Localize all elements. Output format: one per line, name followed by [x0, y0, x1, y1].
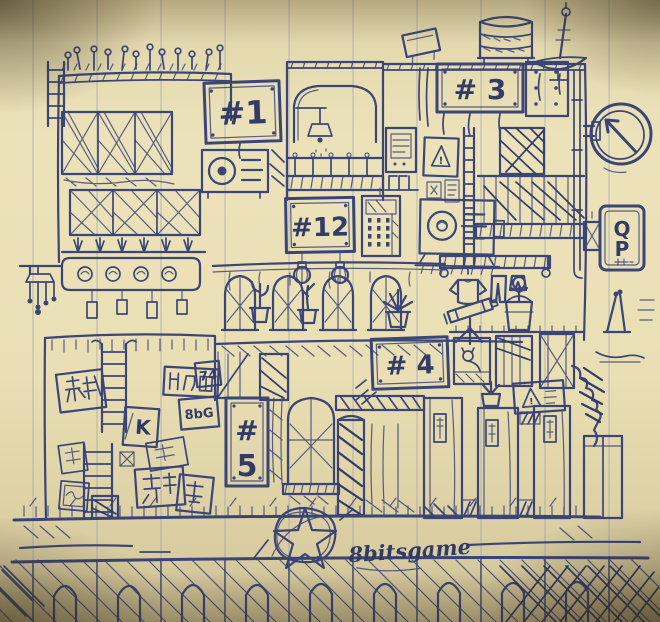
scalloped-edge — [572, 366, 604, 446]
unit-5-hash: # — [235, 414, 258, 447]
poster-k: K — [123, 407, 160, 447]
ac-unit-left — [202, 150, 268, 198]
hanging-lamp — [296, 108, 332, 156]
lattice-window-band-lower — [70, 190, 200, 235]
potted-plants-row — [215, 282, 522, 356]
satellite-dish — [534, 3, 586, 80]
roof-garden — [62, 44, 223, 70]
arrow-traffic-sign — [584, 104, 651, 173]
lattice-window-band-upper — [62, 112, 174, 186]
sign-unit-12: #12 — [286, 197, 355, 252]
unit-4-label: # 4 — [385, 350, 435, 382]
arcade-ledge — [213, 262, 445, 290]
warning-sign-upper: ! — [423, 137, 458, 176]
poster-glyph-board-a — [56, 369, 106, 412]
water-tank — [478, 17, 534, 64]
door-pillar-1 — [424, 398, 462, 518]
unit-5-number: 5 — [237, 449, 258, 484]
pillar-plant — [482, 382, 500, 406]
unit-3-label: # 3 — [454, 73, 507, 106]
signature-text: 8bitsgame — [347, 534, 472, 568]
wind-chime — [26, 266, 57, 315]
poster-8bg-label: 8bG — [184, 406, 214, 423]
poster-8bg: 8bG — [179, 396, 219, 429]
far-right-door — [584, 436, 622, 518]
poster-glyph-board-e — [146, 437, 188, 471]
qp-letter-p: P — [615, 237, 630, 261]
poster-glyph-board-d — [176, 474, 214, 513]
unit-12-label: #12 — [291, 212, 349, 243]
sign-unit-1: #1 — [204, 81, 281, 144]
poster-74-label: 74 — [198, 368, 218, 385]
sign-unit-5: # 5 — [216, 398, 282, 486]
rooftop-vent-box — [402, 28, 441, 64]
poster-tiny-x — [120, 452, 134, 466]
mid-left-balcony — [216, 352, 288, 400]
middle-tower — [287, 62, 383, 200]
cat-window — [454, 338, 490, 384]
balcony — [476, 176, 584, 238]
telescope — [444, 297, 499, 324]
big-arch-window — [283, 398, 339, 504]
poster-wall — [45, 334, 215, 518]
sign-unit-3: # 3 — [437, 64, 523, 136]
qp-shop-sign: Q P — [584, 206, 644, 270]
sketch-canvas: #1 — [0, 0, 660, 622]
sign-unit-4: # 4 — [371, 337, 449, 390]
dark-doorway — [336, 396, 424, 515]
paper-lanterns — [294, 252, 348, 283]
mini-tower-sketch — [362, 188, 400, 256]
hanging-bottles — [87, 290, 187, 318]
drain-ladder — [464, 128, 474, 266]
tower-railing — [287, 153, 383, 190]
foundation — [0, 558, 660, 622]
warning-upper-mark: ! — [438, 156, 443, 167]
wall-panel-sign — [385, 128, 418, 190]
artist-signature: 8bitsgame — [347, 534, 473, 574]
door-pillar-2 — [478, 408, 518, 518]
poster-k-label: K — [134, 415, 153, 440]
antenna-doodle — [596, 290, 654, 363]
dark-window — [500, 128, 544, 174]
unit-1-label: #1 — [218, 93, 268, 133]
side-pipe — [572, 70, 582, 278]
plant-ledge — [62, 238, 205, 252]
photographed-sketch: #1 — [0, 0, 660, 622]
